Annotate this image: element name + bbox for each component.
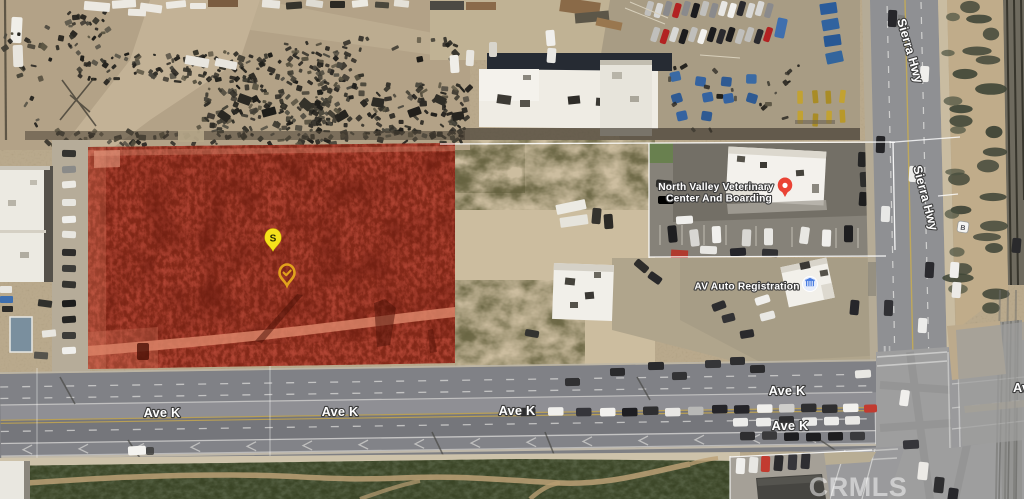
svg-text:CRMLS: CRMLS bbox=[809, 472, 908, 499]
svg-text:Ave K: Ave K bbox=[1013, 380, 1024, 395]
svg-text:AV Auto Registration: AV Auto Registration bbox=[694, 282, 799, 293]
svg-text:Ave K: Ave K bbox=[322, 404, 359, 419]
svg-text:Center And Boarding: Center And Boarding bbox=[666, 194, 772, 205]
svg-text:Ave K: Ave K bbox=[499, 403, 536, 418]
svg-text:North Valley Veterinary: North Valley Veterinary bbox=[658, 182, 774, 193]
svg-text:S: S bbox=[270, 233, 277, 244]
svg-text:B: B bbox=[960, 225, 966, 233]
svg-text:Ave K: Ave K bbox=[769, 383, 806, 398]
svg-text:Ave K: Ave K bbox=[144, 405, 181, 420]
svg-text:Ave K: Ave K bbox=[772, 418, 809, 433]
